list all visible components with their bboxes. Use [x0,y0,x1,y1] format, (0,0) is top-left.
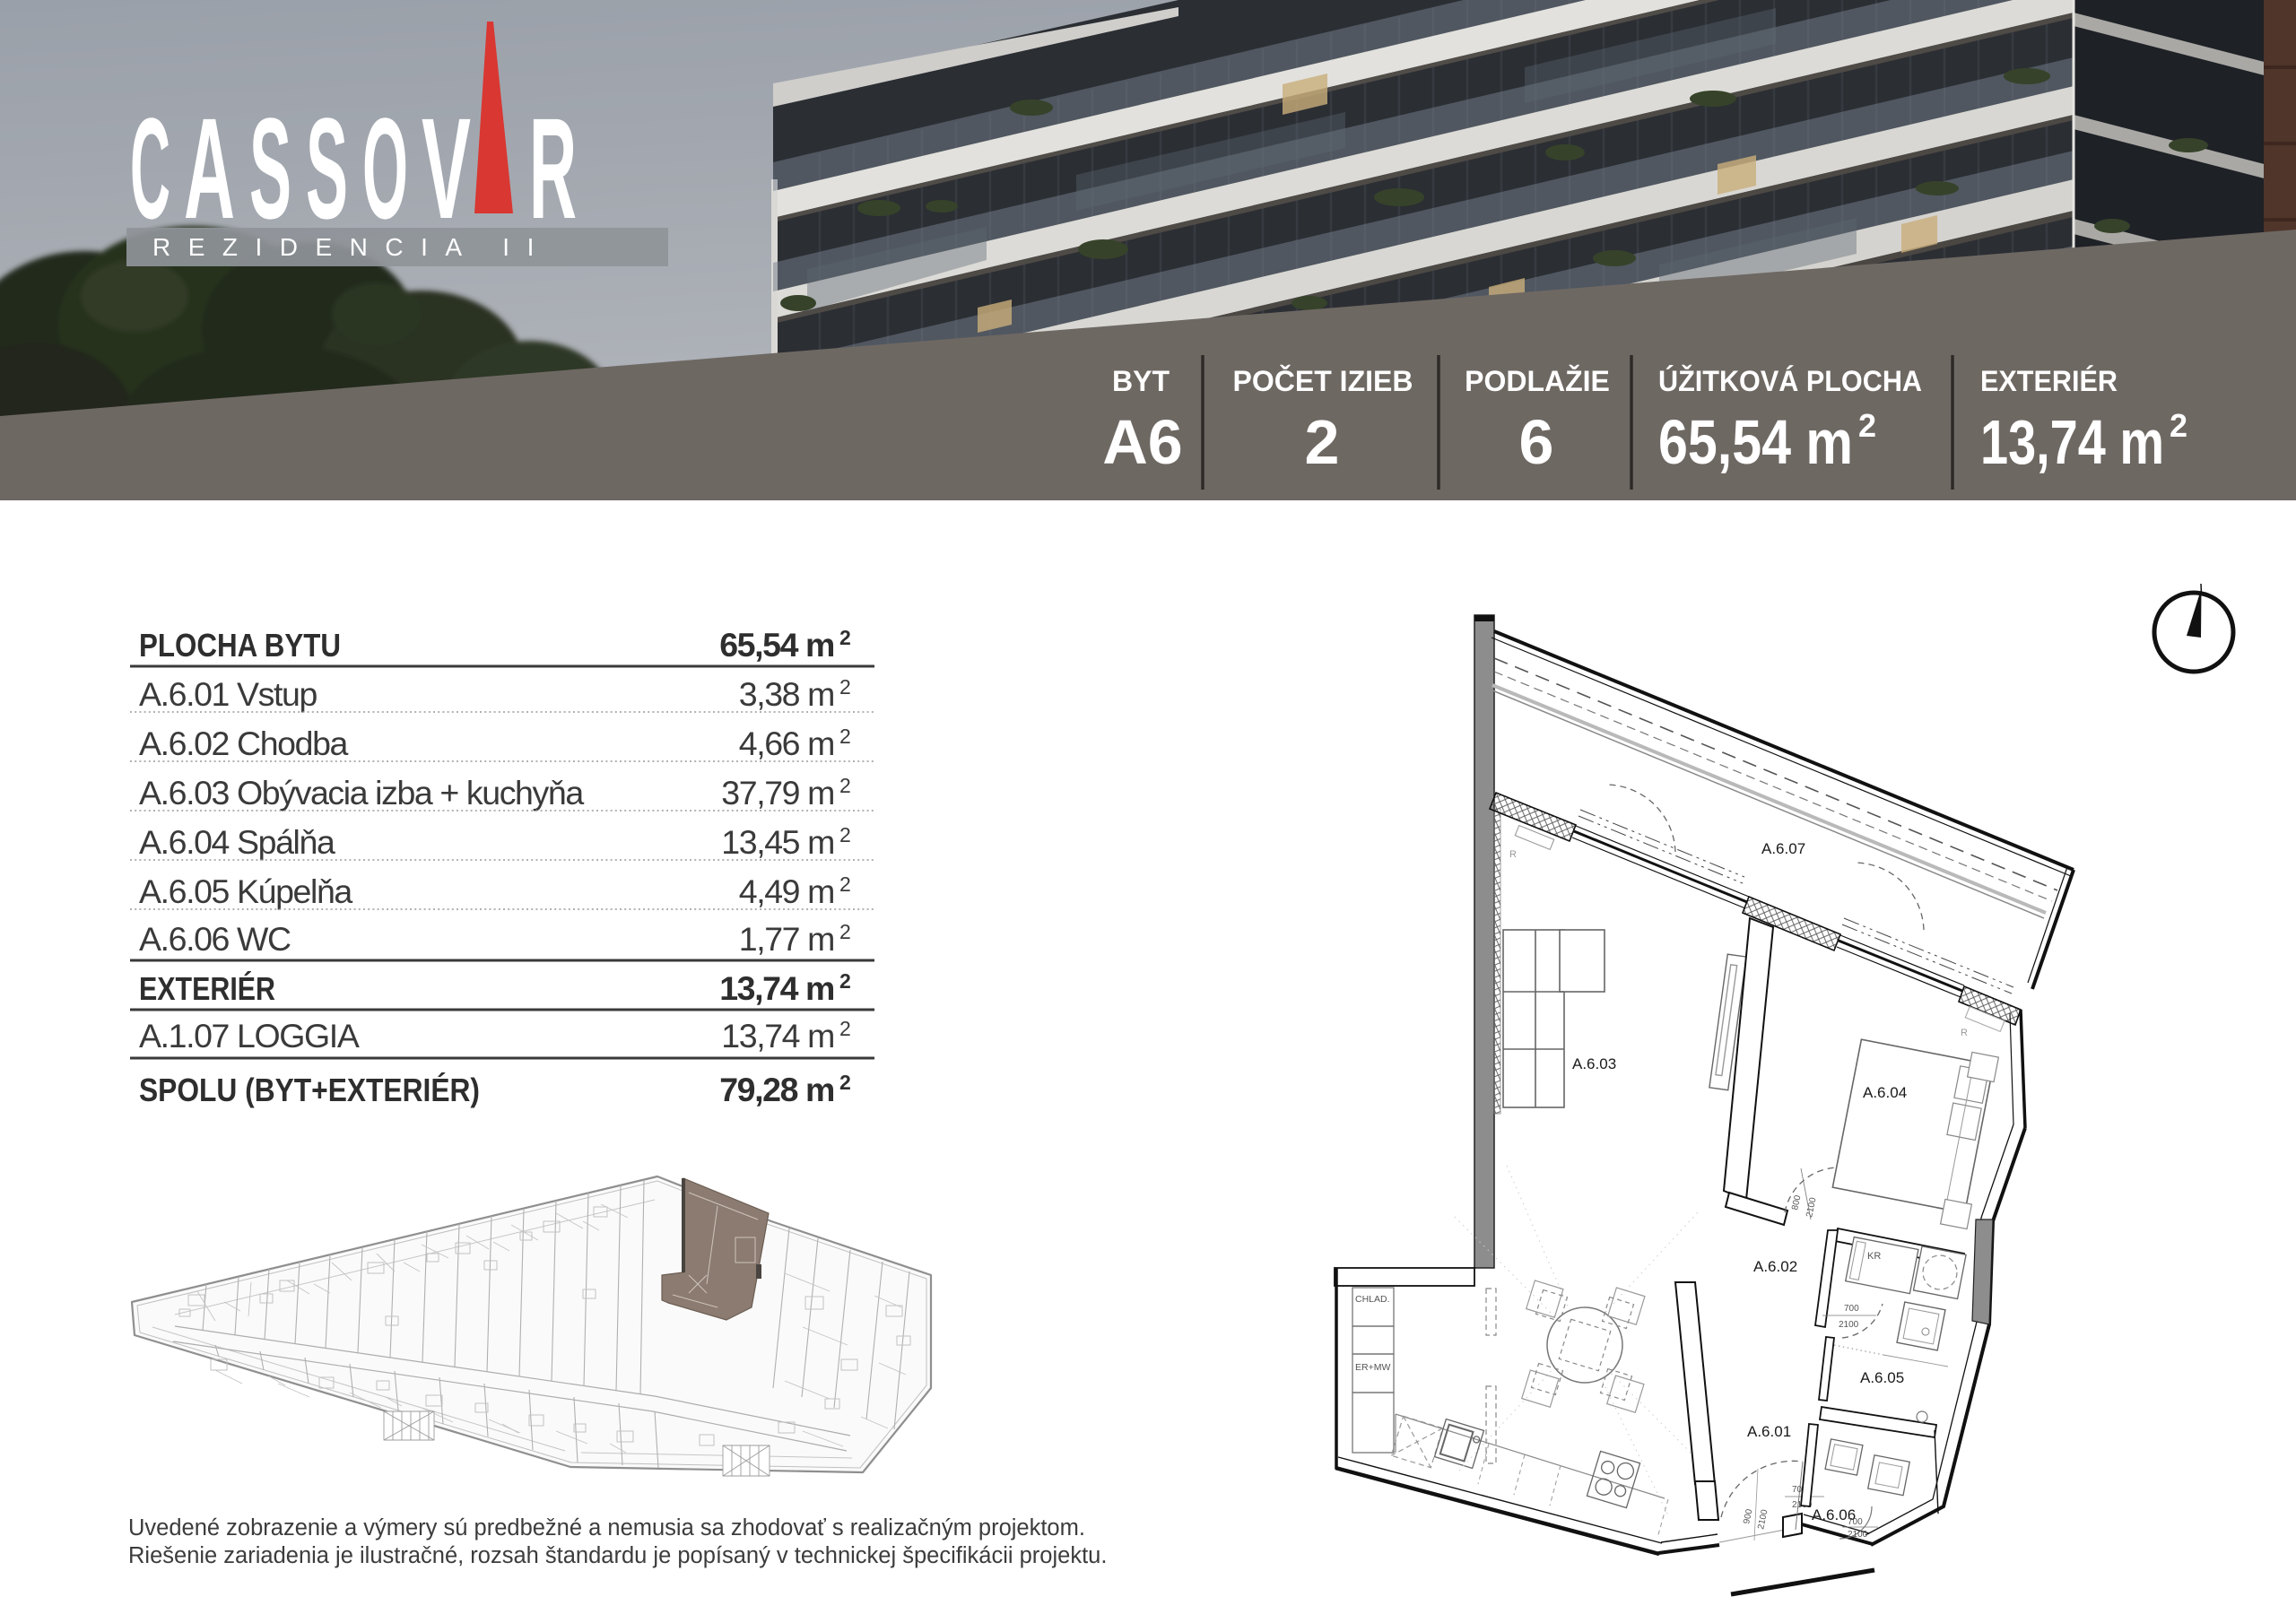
svg-text:2: 2 [2170,407,2187,444]
svg-text:POČET IZIEB: POČET IZIEB [1233,365,1413,397]
svg-text:EXTERIÉR: EXTERIÉR [1980,365,2118,397]
svg-text:ER+MW: ER+MW [1355,1362,1390,1373]
svg-text:A.1.07 LOGGIA: A.1.07 LOGGIA [139,1017,360,1055]
svg-text:65,54 m: 65,54 m [719,626,834,664]
svg-text:2: 2 [1305,407,1340,477]
svg-text:V: V [422,88,471,248]
svg-text:A.6.05 Kúpelňa: A.6.05 Kúpelňa [139,872,352,910]
svg-text:6: 6 [1519,407,1554,477]
svg-text:2: 2 [839,626,850,649]
svg-text:2: 2 [839,920,850,943]
svg-text:A.6.01 Vstup: A.6.01 Vstup [139,675,317,713]
svg-text:13,74 m: 13,74 m [1980,407,2164,477]
svg-text:3,38 m: 3,38 m [739,675,834,713]
svg-text:ÚŽITKOVÁ PLOCHA: ÚŽITKOVÁ PLOCHA [1658,365,1922,397]
svg-text:A6: A6 [1102,407,1182,477]
svg-text:13,45 m: 13,45 m [721,823,834,861]
svg-text:65,54 m: 65,54 m [1658,407,1853,477]
svg-text:2100: 2100 [1839,1320,1859,1330]
svg-text:A.6.04 Spálňa: A.6.04 Spálňa [139,823,335,861]
svg-text:2: 2 [839,1071,850,1094]
svg-text:A.6.07: A.6.07 [1761,840,1805,857]
svg-text:A.6.02: A.6.02 [1753,1258,1797,1275]
svg-text:A.6.03 Obývacia izba + kuchyňa: A.6.03 Obývacia izba + kuchyňa [139,774,584,811]
svg-text:2: 2 [839,823,850,846]
svg-text:CHLAD.: CHLAD. [1355,1294,1390,1305]
svg-text:4,66 m: 4,66 m [739,725,834,762]
svg-text:PODLAŽIE: PODLAŽIE [1465,365,1610,397]
svg-text:REZIDENCIA II: REZIDENCIA II [152,233,552,261]
svg-text:900: 900 [1742,1508,1754,1525]
svg-text:A.6.06 WC: A.6.06 WC [139,920,291,958]
svg-text:37,79 m: 37,79 m [721,774,834,811]
svg-text:A.6.02 Chodba: A.6.02 Chodba [139,725,349,762]
svg-text:2100: 2100 [1756,1508,1770,1530]
svg-text:KR: KR [1867,1251,1881,1262]
svg-text:79,28 m: 79,28 m [719,1071,834,1108]
svg-text:800: 800 [1790,1194,1803,1211]
svg-text:A.6.04: A.6.04 [1863,1084,1907,1101]
svg-text:SPOLU (BYT+EXTERIÉR): SPOLU (BYT+EXTERIÉR) [139,1072,480,1108]
svg-text:2: 2 [839,969,850,993]
svg-text:Riešenie zariadenia je ilustra: Riešenie zariadenia je ilustračné, rozsa… [128,1543,1107,1568]
svg-text:A.6.01: A.6.01 [1747,1423,1791,1440]
svg-text:2: 2 [839,675,850,699]
svg-text:S: S [249,88,291,248]
svg-text:PLOCHA BYTU: PLOCHA BYTU [139,627,341,664]
svg-text:A.6.03: A.6.03 [1572,1055,1616,1072]
svg-text:700: 700 [1848,1517,1863,1527]
svg-text:S: S [306,88,348,248]
svg-text:O: O [362,88,408,248]
svg-text:R: R [1961,1028,1968,1038]
svg-text:700: 700 [1844,1304,1859,1314]
svg-text:2: 2 [839,1017,850,1040]
svg-text:BYT: BYT [1112,365,1170,397]
svg-text:Uvedené zobrazenie a výmery sú: Uvedené zobrazenie a výmery sú predbežné… [128,1515,1085,1541]
svg-text:13,74 m: 13,74 m [721,1017,834,1055]
svg-text:2: 2 [839,774,850,797]
svg-text:2: 2 [839,872,850,896]
svg-text:R: R [529,88,577,248]
svg-text:4,49 m: 4,49 m [739,872,834,910]
svg-text:13,74 m: 13,74 m [719,969,834,1007]
svg-text:1,77 m: 1,77 m [739,920,834,958]
svg-text:2100: 2100 [1848,1530,1868,1540]
svg-text:C: C [130,88,170,248]
svg-text:A.6.05: A.6.05 [1860,1369,1904,1386]
svg-text:R: R [1509,849,1517,860]
svg-text:EXTERIÉR: EXTERIÉR [139,970,275,1007]
svg-text:2: 2 [839,725,850,748]
svg-text:A: A [184,88,235,248]
svg-text:2: 2 [1858,407,1876,444]
